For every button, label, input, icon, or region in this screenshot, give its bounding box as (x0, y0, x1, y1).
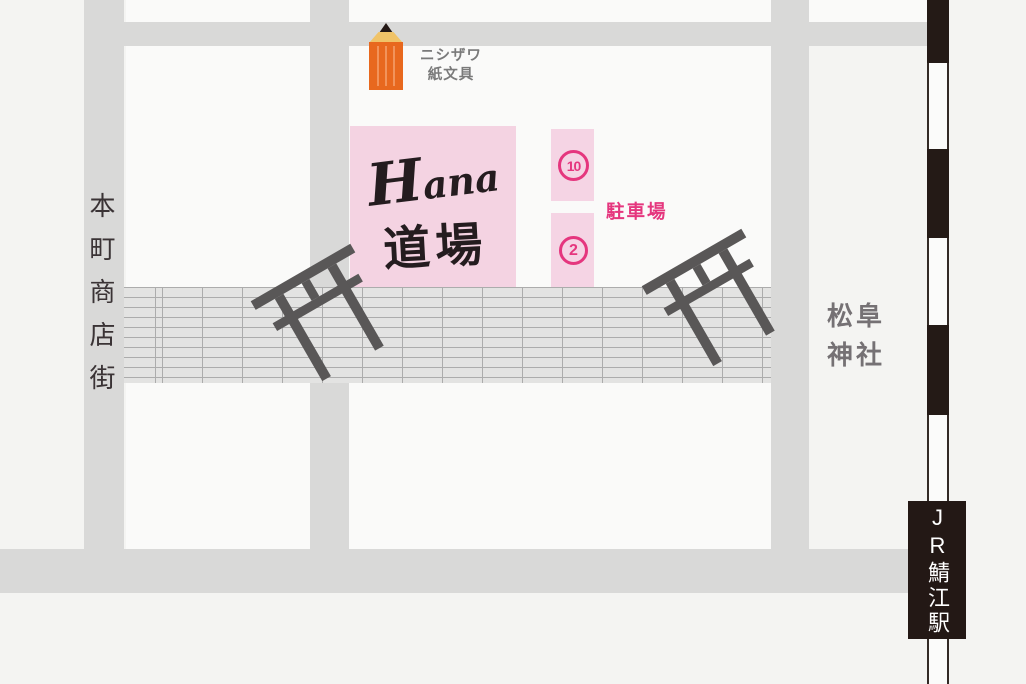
shrine-label: 松阜 神社 (827, 297, 885, 375)
road-horizontal-south (0, 549, 908, 593)
access-map: 本町商店街 ニシザワ 紙文具 Hana 道場 10 2 駐車場 松阜 神社 (0, 0, 1026, 684)
road-horizontal-north (84, 22, 928, 46)
shrine-name-line1: 松阜 (827, 297, 885, 336)
city-block (126, 0, 310, 22)
pencil-tip (379, 23, 393, 33)
shopping-street-label: 本町商店街 (90, 192, 120, 407)
city-block (809, 0, 928, 22)
dojo-logo: Hana 道場 (350, 126, 516, 287)
stationery-shop-label: ニシザワ 紙文具 (408, 47, 494, 84)
station-label: JR鯖江駅 (921, 505, 953, 636)
city-block (349, 383, 771, 549)
stationery-shop-name-line2: 紙文具 (408, 66, 494, 85)
stationery-shop-name-line1: ニシザワ (408, 47, 494, 66)
shrine-name-line2: 神社 (827, 336, 885, 375)
stall-number-top: 10 (567, 158, 581, 174)
city-block (349, 0, 771, 22)
circled-number-10: 10 (558, 150, 589, 181)
city-block (126, 383, 310, 549)
railway-black-segment (927, 325, 949, 415)
dojo-logo-kanji: 道場 (358, 204, 511, 281)
road-vertical-east (771, 0, 809, 549)
circled-number-2: 2 (559, 236, 588, 265)
railway-black-segment (927, 149, 949, 238)
city-block (126, 46, 310, 287)
stall-number-bottom: 2 (569, 242, 578, 260)
railway-black-segment (927, 0, 949, 63)
parking-label: 駐車場 (606, 198, 668, 224)
pencil-icon (369, 23, 403, 90)
station-sign: JR鯖江駅 (908, 501, 966, 639)
